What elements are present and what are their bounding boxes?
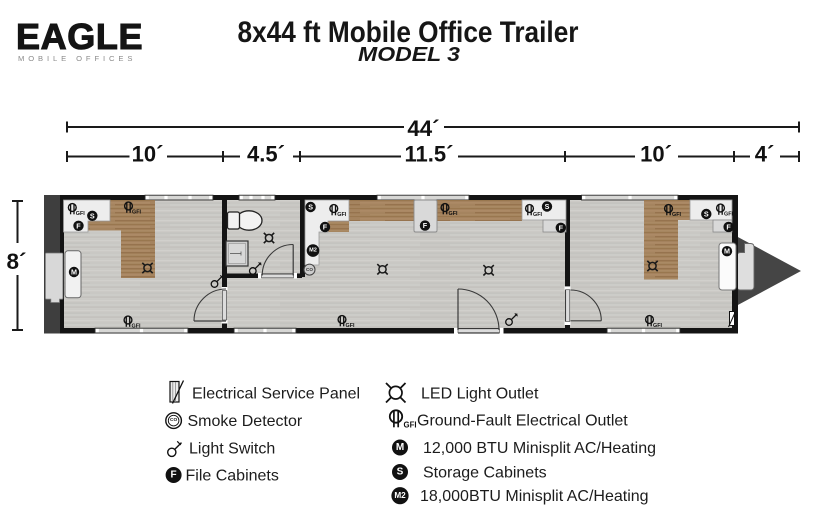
svg-text:GFI: GFI — [533, 212, 542, 218]
svg-text:18,000BTU Minisplit AC/Heating: 18,000BTU Minisplit AC/Heating — [420, 488, 649, 505]
svg-text:GFI: GFI — [404, 421, 417, 430]
svg-text:EAGLE: EAGLE — [16, 16, 143, 57]
svg-text:F: F — [559, 223, 564, 232]
svg-text:Electrical Service Panel: Electrical Service Panel — [192, 386, 360, 403]
svg-text:Storage Cabinets: Storage Cabinets — [423, 465, 547, 482]
svg-text:S: S — [545, 202, 550, 211]
svg-text:M2: M2 — [309, 248, 317, 254]
svg-text:M: M — [71, 268, 77, 277]
svg-text:Ground-Fault Electrical Outlet: Ground-Fault Electrical Outlet — [417, 413, 628, 430]
svg-text:GFI: GFI — [672, 212, 681, 218]
svg-text:F: F — [76, 221, 81, 230]
svg-text:S: S — [704, 210, 709, 219]
svg-text:10´: 10´ — [640, 142, 672, 167]
svg-text:11.5´: 11.5´ — [405, 142, 454, 167]
svg-text:M2: M2 — [394, 491, 406, 500]
svg-text:10´: 10´ — [132, 142, 164, 167]
svg-text:GFI: GFI — [346, 323, 355, 329]
svg-text:M: M — [724, 247, 730, 256]
svg-text:GFI: GFI — [724, 212, 733, 218]
svg-text:8´: 8´ — [6, 249, 26, 274]
svg-text:GFI: GFI — [449, 211, 458, 217]
svg-text:GFI: GFI — [132, 324, 141, 330]
svg-text:CO: CO — [306, 267, 313, 272]
svg-text:F: F — [171, 470, 177, 481]
svg-text:File Cabinets: File Cabinets — [186, 468, 279, 485]
svg-text:GFI: GFI — [76, 211, 85, 217]
svg-text:44´: 44´ — [407, 116, 439, 141]
svg-text:MOBILE OFFICES: MOBILE OFFICES — [18, 54, 136, 63]
svg-text:S: S — [308, 203, 313, 212]
svg-text:MODEL 3: MODEL 3 — [358, 43, 461, 66]
svg-text:LED Light Outlet: LED Light Outlet — [421, 386, 539, 403]
svg-text:F: F — [726, 222, 731, 231]
svg-text:CO: CO — [170, 417, 177, 423]
svg-text:M: M — [396, 442, 404, 453]
svg-text:S: S — [90, 211, 95, 220]
svg-text:GFI: GFI — [132, 210, 141, 216]
svg-text:4´: 4´ — [755, 142, 775, 167]
svg-text:Smoke Detector: Smoke Detector — [188, 413, 303, 430]
svg-text:F: F — [423, 221, 428, 230]
svg-text:GFI: GFI — [337, 212, 346, 218]
svg-text:F: F — [323, 223, 328, 232]
svg-text:S: S — [397, 467, 404, 478]
svg-text:Light Switch: Light Switch — [189, 441, 275, 458]
svg-text:GFI: GFI — [653, 323, 662, 329]
svg-text:4.5´: 4.5´ — [247, 142, 285, 167]
svg-text:12,000 BTU Minisplit AC/Heatin: 12,000 BTU Minisplit AC/Heating — [423, 440, 656, 457]
